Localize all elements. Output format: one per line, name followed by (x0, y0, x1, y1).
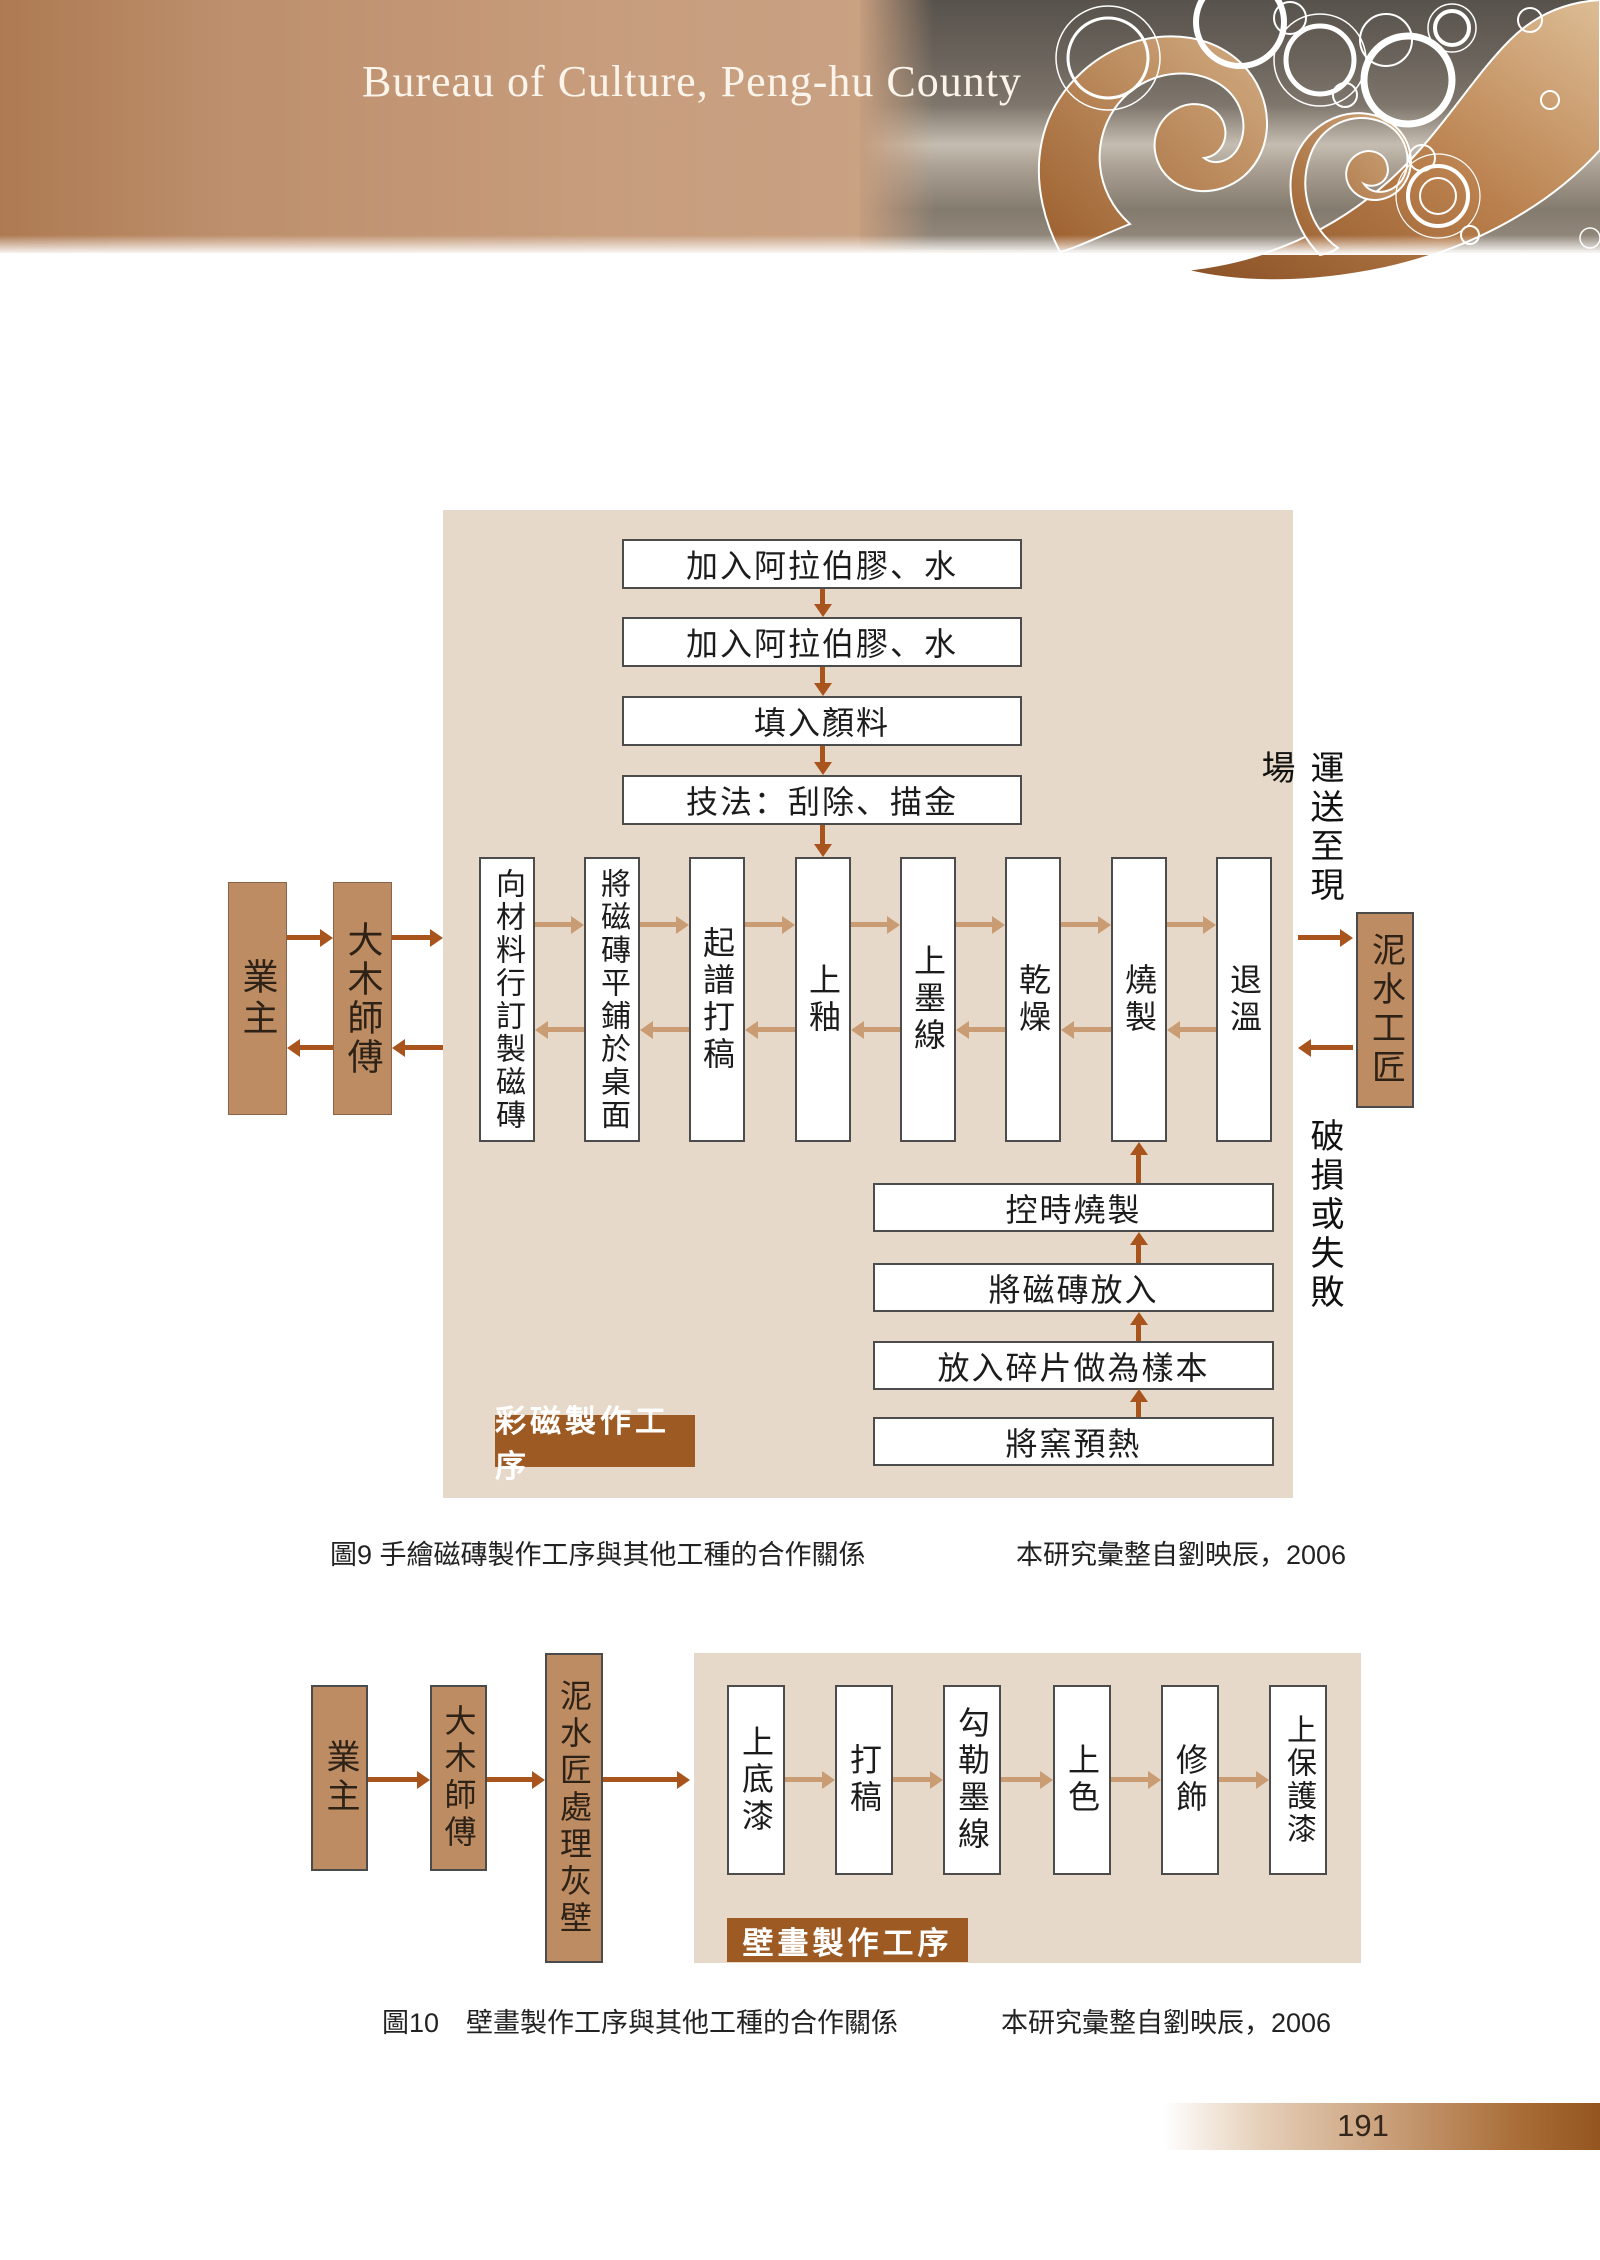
figure10-panel (694, 1653, 1361, 1963)
figure9-main-step: 向材料行訂製磁磚 (479, 857, 535, 1142)
arrow-left-icon (969, 1027, 1005, 1032)
figure9-main-step: 退溫 (1216, 857, 1272, 1142)
figure9-main-step: 起譜打稿 (689, 857, 745, 1142)
arrow-down-icon (820, 667, 825, 683)
figure10-step: 上色 (1053, 1685, 1111, 1875)
figure10-step: 打稿 (835, 1685, 893, 1875)
figure9-main-step: 乾燥 (1005, 857, 1061, 1142)
arrow-right-icon (1061, 922, 1098, 927)
arrow-left-icon (1074, 1027, 1111, 1032)
wave-curl-large (1039, 36, 1267, 252)
figure10-step: 勾勒墨線 (943, 1685, 1001, 1875)
arrow-right-icon (1298, 935, 1340, 940)
arrow-up-icon (1136, 1155, 1141, 1183)
arrow-right-icon (893, 1777, 930, 1782)
arrow-left-icon (1311, 1045, 1353, 1050)
arrow-right-icon (785, 1777, 822, 1782)
arrow-right-icon (287, 935, 320, 940)
arrow-right-icon (1167, 922, 1203, 927)
figure9-actor-owner: 業主 (228, 882, 287, 1115)
arrow-left-icon (300, 1045, 333, 1050)
arrow-right-icon (745, 922, 782, 927)
figure9-top-step: 加入阿拉伯膠、水 (622, 539, 1022, 589)
arrow-left-icon (405, 1045, 443, 1050)
figure9-main-step: 燒製 (1111, 857, 1167, 1142)
figure10-actor-master-carpenter: 大木師傅 (430, 1685, 487, 1871)
arrow-left-icon (758, 1027, 795, 1032)
figure10-caption: 圖10 壁畫製作工序與其他工種的合作關係 (382, 2001, 898, 2040)
figure9-note-delivery: 運送至現場 (1302, 750, 1348, 915)
arrow-right-icon (1001, 1777, 1040, 1782)
arrow-up-icon (1136, 1245, 1141, 1263)
figure10-actor-mason-plaster: 泥水匠處理灰壁 (545, 1653, 603, 1963)
figure9-actor-mason: 泥水工匠 (1356, 912, 1414, 1108)
arrow-right-icon (603, 1777, 677, 1782)
figure10-step: 修飾 (1161, 1685, 1219, 1875)
arrow-up-icon (1136, 1402, 1141, 1417)
figure9-actor-master-carpenter: 大木師傅 (333, 882, 392, 1115)
arrow-down-icon (820, 746, 825, 762)
arrow-up-icon (1136, 1325, 1141, 1341)
header-bottom-fade (0, 235, 1600, 255)
arrow-down-icon (820, 589, 825, 604)
arrow-left-icon (653, 1027, 689, 1032)
page-number: 191 (1323, 2108, 1403, 2144)
figure10-step: 上保護漆 (1269, 1685, 1327, 1875)
arrow-right-icon (640, 922, 676, 927)
figure9-kiln-step: 將磁磚放入 (873, 1263, 1274, 1312)
arrow-right-icon (956, 922, 992, 927)
figure10-process-label: 壁畫製作工序 (727, 1918, 968, 1962)
figure10-step: 上底漆 (727, 1685, 785, 1875)
figure10-source: 本研究彙整自劉映辰，2006 (1001, 2001, 1331, 2040)
figure9-main-step: 上釉 (795, 857, 851, 1142)
arrow-down-icon (820, 825, 825, 844)
arrow-right-icon (368, 1777, 417, 1782)
arrow-right-icon (851, 922, 887, 927)
arrow-right-icon (535, 922, 571, 927)
figure9-main-step: 將磁磚平鋪於桌面 (584, 857, 640, 1142)
figure9-kiln-step: 將窯預熱 (873, 1417, 1274, 1466)
figure9-caption: 圖9 手繪磁磚製作工序與其他工種的合作關係 (330, 1533, 866, 1572)
arrow-left-icon (864, 1027, 900, 1032)
arrow-left-icon (1180, 1027, 1216, 1032)
figure10-actor-owner: 業主 (311, 1685, 368, 1871)
arrow-right-icon (487, 1777, 532, 1782)
figure9-source: 本研究彙整自劉映辰，2006 (1016, 1533, 1346, 1572)
arrow-right-icon (392, 935, 430, 940)
figure9-kiln-step: 控時燒製 (873, 1183, 1274, 1232)
page-title: Bureau of Culture, Peng-hu County (362, 58, 1022, 106)
arrow-right-icon (1219, 1777, 1256, 1782)
arrow-left-icon (548, 1027, 584, 1032)
arrow-right-icon (1111, 1777, 1148, 1782)
document-page: Bureau of Culture, Peng-hu County 加入阿拉伯膠… (0, 0, 1600, 2260)
figure9-top-step: 加入阿拉伯膠、水 (622, 617, 1022, 667)
figure9-kiln-step: 放入碎片做為樣本 (873, 1341, 1274, 1390)
figure9-main-step: 上墨線 (900, 857, 956, 1142)
figure9-note-failure: 破損或失敗 (1302, 1118, 1348, 1343)
figure9-top-step: 技法：刮除、描金 (622, 775, 1022, 825)
figure9-top-step: 填入顏料 (622, 696, 1022, 746)
figure9-process-label: 彩磁製作工序 (495, 1415, 695, 1467)
